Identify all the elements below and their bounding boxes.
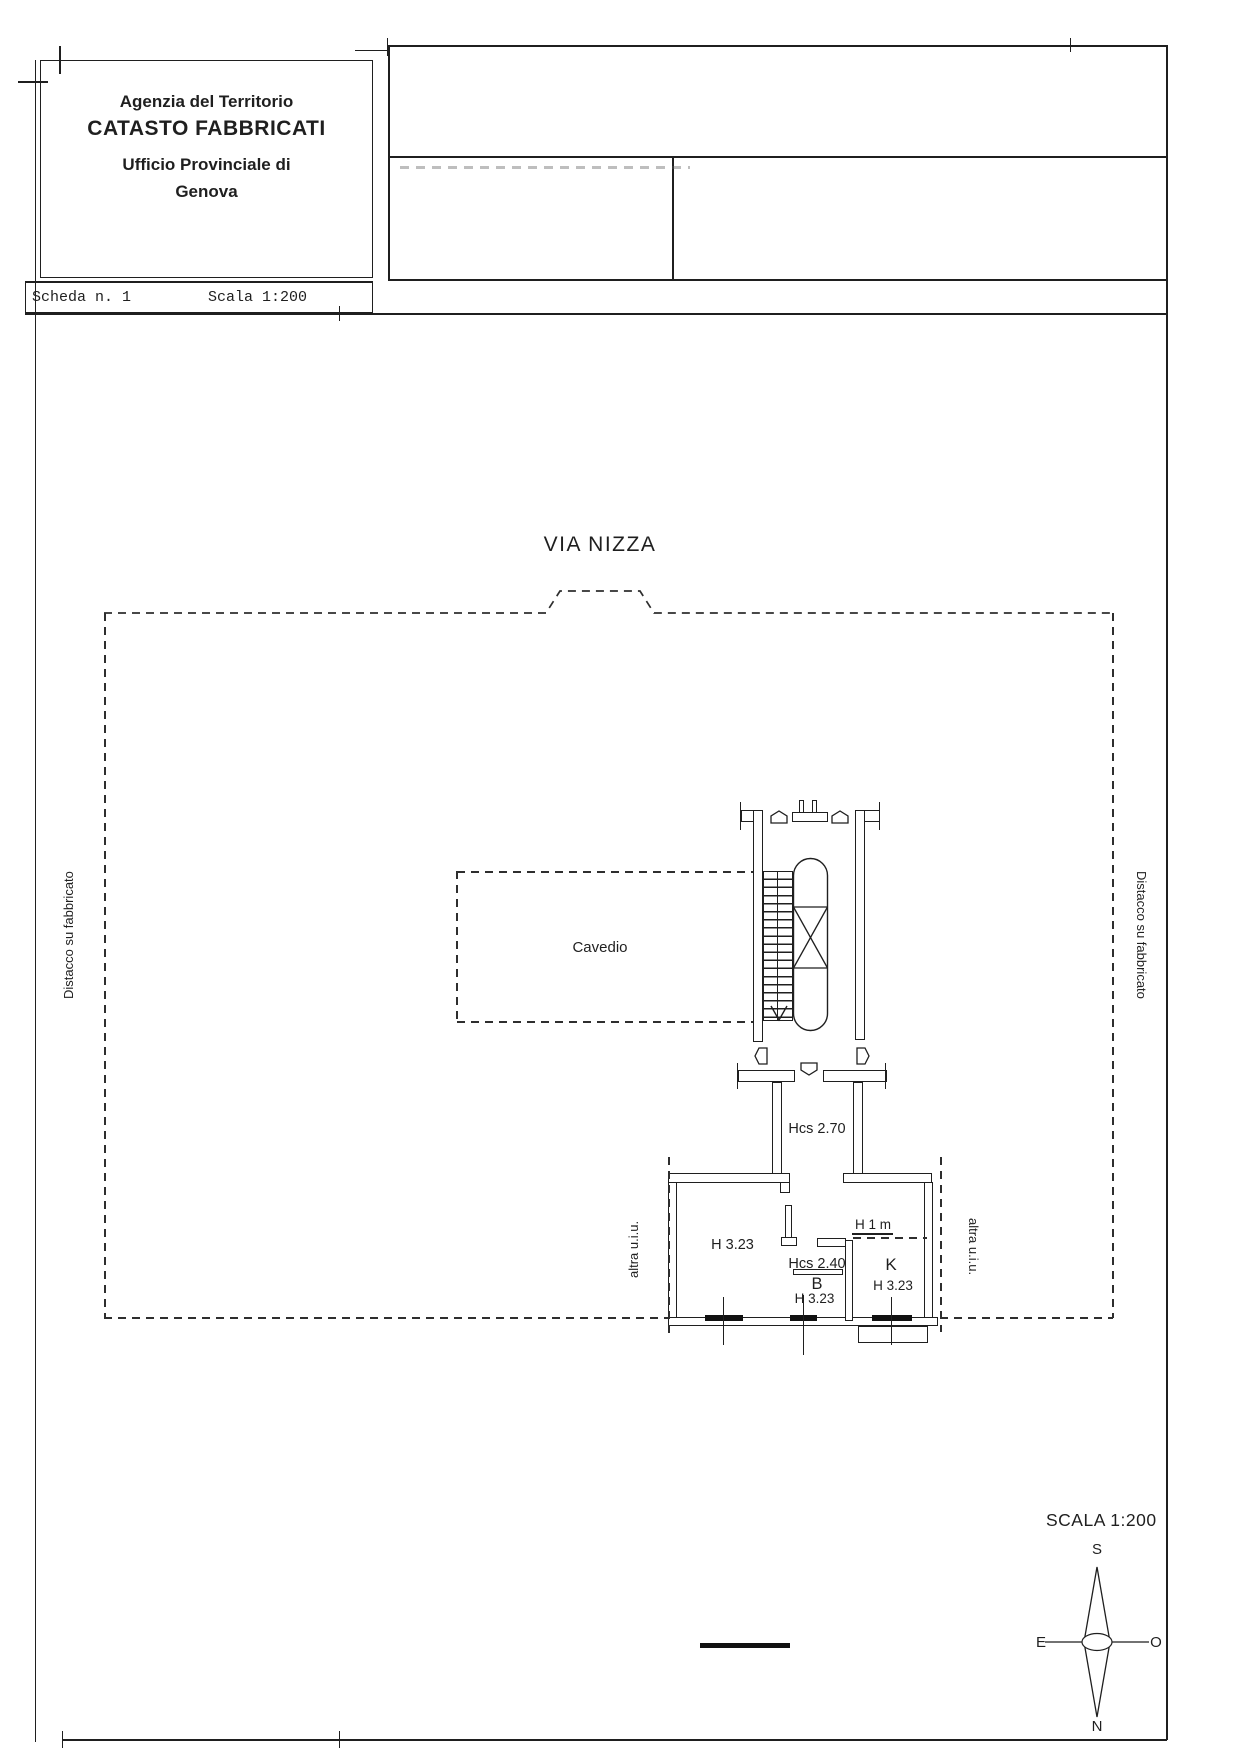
corridor-height-label: Hcs 2.70 bbox=[779, 1121, 855, 1137]
stairwell-center-stub-1 bbox=[799, 800, 804, 813]
compass-west-label: O bbox=[1146, 1634, 1166, 1651]
top-box-left-line bbox=[388, 45, 390, 280]
bath-jamb-left bbox=[781, 1237, 797, 1246]
door-swing-up-icon bbox=[770, 810, 788, 824]
bottom-left-tick bbox=[62, 1731, 63, 1748]
bottom-tick-2 bbox=[339, 1731, 340, 1748]
top-box-top-line bbox=[388, 45, 1167, 47]
header-corner-tick-v bbox=[59, 46, 61, 74]
scale-note: SCALA 1:200 bbox=[1046, 1510, 1167, 1531]
top-box-bottom-line bbox=[388, 279, 1167, 281]
door-swing-right-icon bbox=[856, 1047, 870, 1065]
left-unit-boundary-dashed bbox=[668, 1157, 670, 1337]
apartment-top-wall-right bbox=[843, 1173, 932, 1183]
staircase-center-line bbox=[777, 871, 778, 1021]
right-unit-boundary-dashed bbox=[940, 1157, 942, 1332]
distacco-right-label: Distacco su fabbricato bbox=[1133, 846, 1149, 1024]
stairwell-left-flange-tick bbox=[740, 802, 741, 830]
street-name: VIA NIZZA bbox=[480, 533, 720, 557]
compass-north-label: N bbox=[1087, 1718, 1107, 1735]
balcony-outline bbox=[858, 1326, 928, 1343]
lot-perimeter-left-dashed bbox=[104, 613, 106, 1318]
kitchen-height-label: H 3.23 bbox=[867, 1278, 919, 1293]
landing-wall-right-tick bbox=[885, 1063, 886, 1089]
kitchen-parapet-dashed bbox=[853, 1237, 927, 1239]
landing-wall-left-tick bbox=[737, 1063, 738, 1089]
plan-frame-top-line bbox=[25, 313, 1167, 315]
footer-mark-bar bbox=[700, 1643, 790, 1648]
sheet-number: Scheda n. 1 bbox=[32, 289, 131, 306]
kitchen-room-label: K bbox=[880, 1255, 902, 1275]
stairwell-left-wall bbox=[753, 810, 763, 1042]
sheet-scale: Scala 1:200 bbox=[208, 289, 307, 306]
agency-name: Agenzia del Territorio bbox=[40, 92, 373, 112]
top-box-right-tick bbox=[1070, 38, 1071, 52]
lot-perimeter-bottom-right-dashed bbox=[940, 1317, 1113, 1319]
apartment-top-wall-stub bbox=[780, 1182, 790, 1193]
compass-rose bbox=[1037, 1562, 1157, 1722]
apartment-right-wall bbox=[924, 1182, 933, 1323]
lot-perimeter-bottom-left-dashed bbox=[104, 1317, 670, 1319]
landing-wall-left bbox=[738, 1070, 795, 1082]
door-swing-left-icon bbox=[754, 1047, 768, 1065]
altra-uiu-left-label: altra u.i.u. bbox=[626, 1208, 641, 1290]
elevator-symbol bbox=[792, 857, 830, 1033]
bath-ceiling-label: Hcs 2.40 bbox=[780, 1256, 854, 1272]
compass-east-label: E bbox=[1031, 1634, 1051, 1651]
top-box-vertical-divider bbox=[672, 156, 674, 280]
header-corner-tick-h bbox=[18, 81, 48, 83]
lot-perimeter-right-dashed bbox=[1112, 613, 1114, 1318]
bath-height-label: H 3.23 bbox=[787, 1291, 842, 1306]
office-line: Ufficio Provinciale di bbox=[40, 155, 373, 175]
cadastral-sheet-page: Agenzia del Territorio CATASTO FABBRICAT… bbox=[0, 0, 1240, 1755]
cavedio-bottom-dashed bbox=[457, 1021, 754, 1023]
door-swing-down-icon bbox=[800, 1062, 818, 1076]
stair-direction-arrow bbox=[768, 1003, 790, 1023]
top-box-divider-line bbox=[388, 156, 1167, 158]
faded-scan-text bbox=[400, 166, 690, 169]
distacco-left-label: Distacco su fabbricato bbox=[61, 846, 77, 1024]
stairwell-right-wall bbox=[855, 810, 865, 1040]
stairwell-right-flange-tick bbox=[879, 802, 880, 830]
parapet-label-underline bbox=[852, 1233, 893, 1235]
window-axis-tick-1 bbox=[723, 1297, 724, 1345]
registry-title: CATASTO FABBRICATI bbox=[40, 117, 373, 141]
door-swing-up-icon bbox=[831, 810, 849, 824]
altra-uiu-right-label: altra u.i.u. bbox=[966, 1206, 981, 1288]
stairwell-center-stub-2 bbox=[812, 800, 817, 813]
compass-south-label: S bbox=[1087, 1541, 1107, 1558]
bath-top-wall bbox=[817, 1238, 846, 1247]
page-right-border-line bbox=[1166, 45, 1168, 1740]
lot-perimeter-top-dashed bbox=[104, 588, 1116, 616]
plan-frame-bottom-line bbox=[62, 1739, 1167, 1741]
living-height-label: H 3.23 bbox=[695, 1237, 770, 1253]
cavedio-left-dashed bbox=[456, 871, 458, 1023]
apartment-top-wall-left bbox=[668, 1173, 790, 1183]
cavedio-top-dashed bbox=[457, 871, 754, 873]
parapet-height-label: H 1 m bbox=[845, 1217, 901, 1232]
city-line: Genova bbox=[40, 182, 373, 202]
cavedio-label: Cavedio bbox=[520, 939, 680, 956]
bath-kitchen-partition bbox=[845, 1240, 853, 1321]
stairwell-center-wall bbox=[792, 812, 828, 822]
top-box-step-line bbox=[355, 50, 390, 51]
landing-wall-right bbox=[823, 1070, 887, 1082]
